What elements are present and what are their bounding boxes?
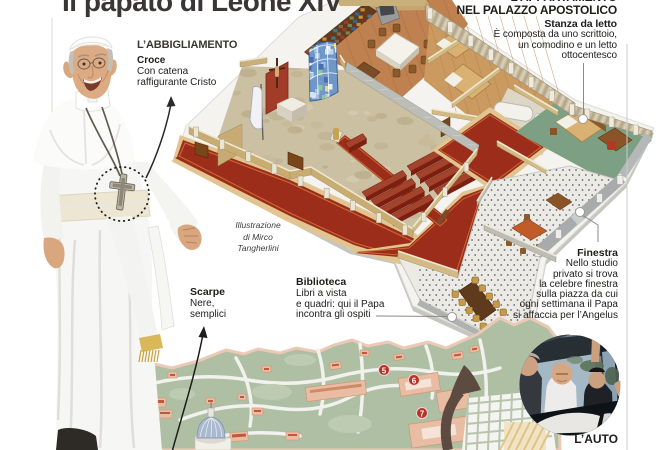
svg-text:5: 5: [382, 366, 387, 375]
svg-text:6: 6: [412, 376, 417, 385]
svg-text:7: 7: [420, 409, 425, 418]
